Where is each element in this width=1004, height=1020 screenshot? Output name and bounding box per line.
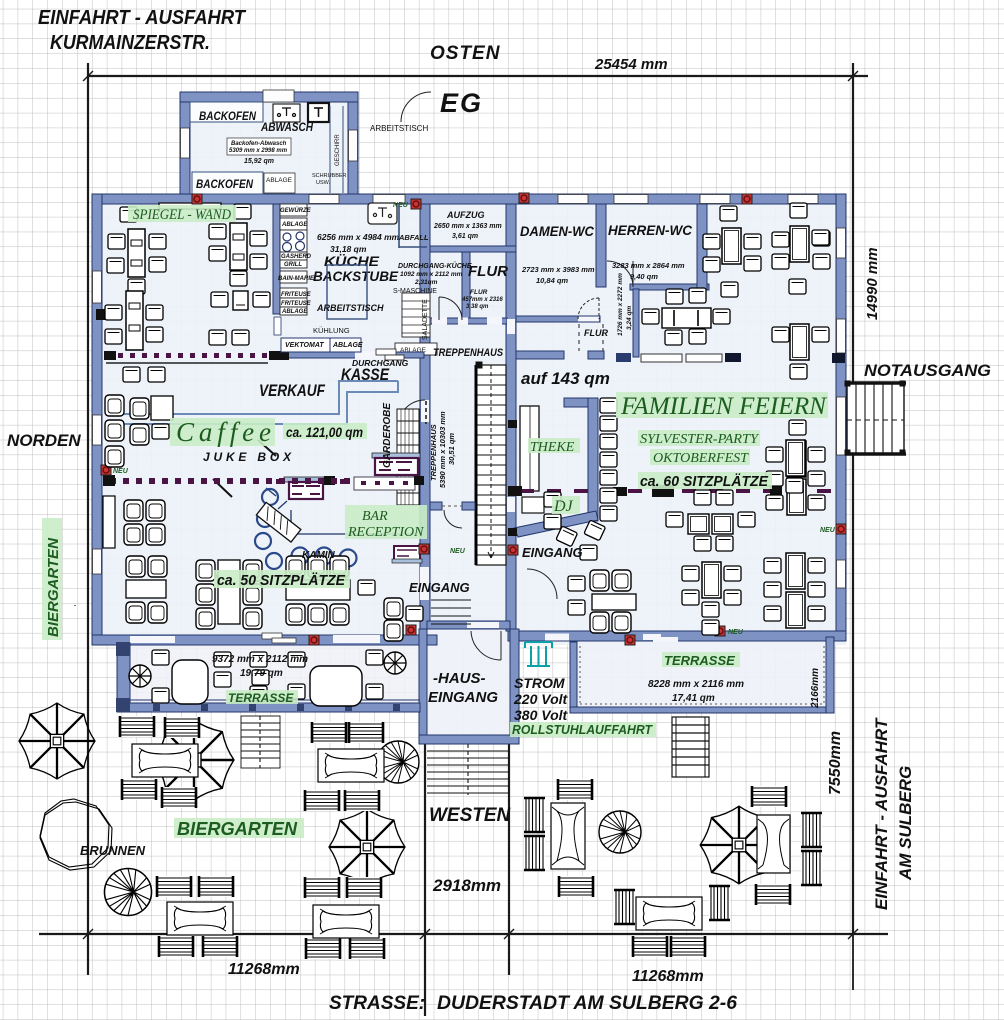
svg-text:STRASSE:: STRASSE: [329,993,425,1014]
svg-text:5309 mm x 2998 mm: 5309 mm x 2998 mm [229,148,288,154]
svg-text:9,40 qm: 9,40 qm [630,272,658,281]
svg-text:BACKSTUBE: BACKSTUBE [313,268,399,284]
svg-text:EG: EG [440,88,483,118]
svg-text:auf 143 qm: auf 143 qm [521,369,610,388]
svg-text:FAMILIEN FEIERN: FAMILIEN FEIERN [620,393,827,420]
svg-text:11268mm: 11268mm [632,968,704,985]
svg-text:ca. 60 SITZPLÄTZE: ca. 60 SITZPLÄTZE [640,473,769,490]
svg-text:GRILL: GRILL [284,262,302,268]
svg-text:2,31qm: 2,31qm [414,279,438,286]
svg-text:KÜCHE: KÜCHE [324,253,380,269]
svg-text:EINGANG: EINGANG [409,580,470,595]
svg-text:KURMAINZERSTR.: KURMAINZERSTR. [50,32,210,54]
svg-text:TERRASSE: TERRASSE [664,653,735,668]
svg-text:FRITEUSE: FRITEUSE [281,301,312,307]
svg-text:GASHERD: GASHERD [281,254,312,260]
svg-text:NEU: NEU [820,527,836,534]
svg-text:ARBEITSTISCH: ARBEITSTISCH [316,303,384,313]
svg-text:BAIN-MARIE: BAIN-MARIE [278,276,315,282]
svg-text:25454 mm: 25454 mm [594,56,668,73]
svg-text:380 Volt: 380 Volt [514,707,569,723]
svg-text:2650 mm x 1363 mm: 2650 mm x 1363 mm [433,223,502,230]
svg-text:11268mm: 11268mm [228,961,300,978]
svg-text:9372 mm x 2112 mm: 9372 mm x 2112 mm [212,654,308,665]
svg-text:2723 mm x 3983 mm: 2723 mm x 3983 mm [521,265,595,274]
svg-text:SCHRUBBER: SCHRUBBER [312,173,347,179]
svg-text:EINGANG: EINGANG [522,545,583,560]
svg-text:NEU: NEU [728,629,744,636]
svg-text:HERREN-WC: HERREN-WC [608,222,693,238]
svg-text:TREPPENHAUS: TREPPENHAUS [433,347,504,359]
svg-text:FLUR: FLUR [468,263,508,280]
svg-text:EINGANG: EINGANG [428,689,498,706]
svg-text:WESTEN: WESTEN [429,805,512,826]
svg-text:457mm x 2316: 457mm x 2316 [461,297,503,303]
svg-text:ABLAGE: ABLAGE [281,309,308,315]
svg-text:10,84 qm: 10,84 qm [536,276,568,285]
svg-text:17,41 qm: 17,41 qm [672,693,715,704]
svg-text:8228 mm x 2116 mm: 8228 mm x 2116 mm [648,679,744,690]
svg-text:BIERGARTEN: BIERGARTEN [177,819,298,839]
svg-text:DURCHGANG-KÜCHE: DURCHGANG-KÜCHE [398,261,472,270]
svg-text:220 Volt: 220 Volt [513,691,569,707]
svg-text:S-MASCHINE: S-MASCHINE [393,288,437,295]
svg-text:ARBEITSTISCH: ARBEITSTISCH [370,124,428,133]
svg-text:SYLVESTER-PARTY: SYLVESTER-PARTY [640,432,760,447]
svg-text:THEKE: THEKE [530,440,575,455]
svg-text:KAMIN: KAMIN [302,550,336,561]
svg-text:VEKTOMAT: VEKTOMAT [285,342,324,349]
svg-text:2918mm: 2918mm [432,876,501,895]
svg-text:STROM: STROM [514,675,565,691]
svg-text:ROLLSTUHLAUFFAHRT: ROLLSTUHLAUFFAHRT [512,722,653,737]
svg-text:BIERGARTEN: BIERGARTEN [45,537,62,637]
svg-text:DJ: DJ [553,498,574,515]
svg-text:OSTEN: OSTEN [430,43,501,64]
svg-text:19,79 qm: 19,79 qm [240,668,283,679]
svg-text:SALADETTE: SALADETTE [422,299,429,340]
svg-text:BRUNNEN: BRUNNEN [80,843,146,858]
svg-text:TREPPENHAUS: TREPPENHAUS [429,424,438,481]
svg-text:3283 mm x 2864 mm: 3283 mm x 2864 mm [612,261,685,270]
svg-text:ABLAGE: ABLAGE [332,342,363,349]
svg-text:VERKAUF: VERKAUF [259,381,325,400]
svg-text:ABLAGE: ABLAGE [281,222,308,228]
svg-text:1092 mm x 2112 mm: 1092 mm x 2112 mm [400,271,463,278]
svg-text:NORDEN: NORDEN [7,431,81,450]
svg-text:3,61 qm: 3,61 qm [452,233,478,240]
svg-text:TERRASSE: TERRASSE [228,691,294,705]
svg-text:BACKOFEN: BACKOFEN [196,177,253,191]
svg-text:KÜHLUNG: KÜHLUNG [313,326,350,335]
svg-text:GESCHIRR: GESCHIRR [335,134,341,166]
svg-text:NOTAUSGANG: NOTAUSGANG [864,361,991,380]
svg-text:ABLAGE: ABLAGE [266,177,293,184]
svg-text:BACKOFEN: BACKOFEN [199,109,256,123]
svg-text:GEWÜRZE: GEWÜRZE [280,207,312,214]
svg-text:DURCHGANG: DURCHGANG [352,358,409,368]
svg-text:FLUR: FLUR [584,328,608,338]
svg-text:5390 mm x 10303 mm: 5390 mm x 10303 mm [438,411,447,488]
svg-text:AUFZUG: AUFZUG [446,210,485,220]
svg-text:ABWASCH: ABWASCH [260,120,313,134]
svg-text:ca. 121,00 qm: ca. 121,00 qm [286,424,363,440]
svg-text:Backofen-Abwasch: Backofen-Abwasch [231,141,287,147]
svg-text:NEU: NEU [113,468,129,475]
svg-text:GARDEROBE: GARDEROBE [382,403,393,468]
svg-text:EINFAHRT - AUSFAHRT: EINFAHRT - AUSFAHRT [38,7,247,29]
svg-text:BAR: BAR [362,509,388,524]
svg-text:DUDERSTADT AM SULBERG 2-6: DUDERSTADT AM SULBERG 2-6 [437,993,737,1014]
svg-text:NEU: NEU [450,548,466,555]
svg-text:ABFALL: ABFALL [398,233,429,242]
svg-text:EINFAHRT - AUSFAHRT: EINFAHRT - AUSFAHRT [872,717,891,910]
svg-text:14990 mm: 14990 mm [864,247,881,320]
svg-text:FLUR: FLUR [470,289,488,296]
svg-text:30,51 qm: 30,51 qm [447,433,456,465]
svg-text:1726 mm x 2272 mm: 1726 mm x 2272 mm [617,273,624,336]
svg-text:7550mm: 7550mm [827,731,844,795]
svg-text:-HAUS-: -HAUS- [433,670,486,687]
svg-text:FRITEUSE: FRITEUSE [281,292,312,298]
svg-text:15,92 qm: 15,92 qm [244,158,274,165]
svg-text:3,24 qm: 3,24 qm [626,306,633,330]
svg-text:RECEPTION: RECEPTION [347,525,424,540]
svg-text:OKTOBERFEST: OKTOBERFEST [653,451,749,466]
svg-text:SPIEGEL - WAND: SPIEGEL - WAND [133,207,231,223]
svg-text:3,38 qm: 3,38 qm [466,304,489,310]
svg-text:AM SULBERG: AM SULBERG [896,766,915,881]
svg-text:ca. 50 SITZPLÄTZE: ca. 50 SITZPLÄTZE [217,572,346,589]
svg-text:USW.: USW. [316,180,331,186]
svg-text:6256 mm x 4984 mm: 6256 mm x 4984 mm [317,232,400,242]
svg-text:2166mm: 2166mm [810,668,821,709]
svg-text:NEU: NEU [393,202,409,209]
svg-text:DAMEN-WC: DAMEN-WC [520,223,595,239]
